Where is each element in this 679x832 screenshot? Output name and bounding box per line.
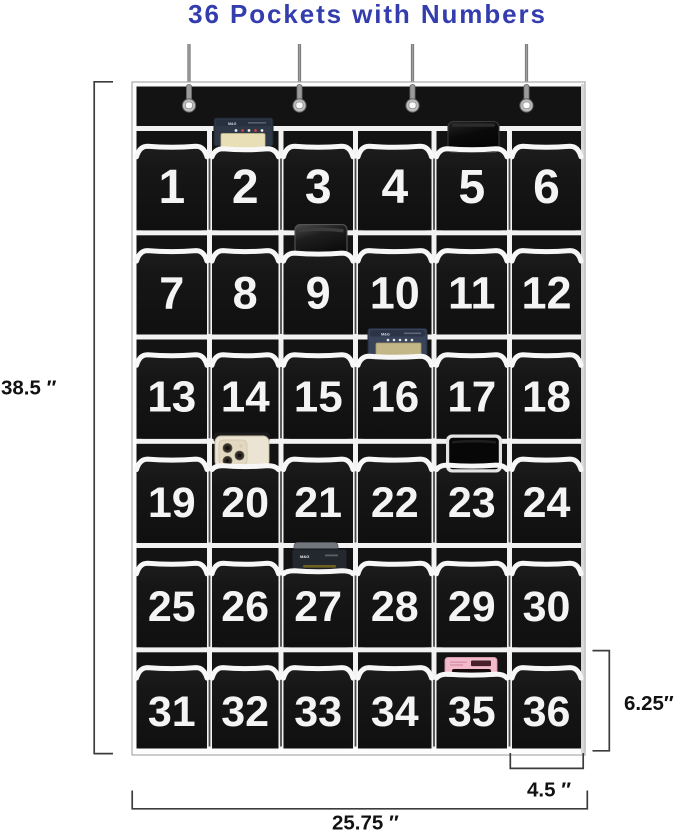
svg-text:1: 1 [158, 161, 185, 214]
svg-text:24: 24 [523, 479, 571, 527]
svg-text:31: 31 [148, 688, 196, 736]
svg-text:12: 12 [521, 267, 571, 318]
svg-text:36: 36 [523, 688, 571, 736]
svg-text:M&G: M&G [228, 122, 237, 126]
svg-text:16: 16 [370, 373, 419, 422]
svg-text:35: 35 [448, 688, 496, 736]
svg-text:34: 34 [371, 688, 419, 736]
svg-text:18: 18 [522, 373, 571, 422]
svg-text:4.5 ″: 4.5 ″ [527, 779, 571, 802]
svg-text:4: 4 [381, 161, 408, 214]
svg-text:27: 27 [294, 583, 342, 631]
svg-text:28: 28 [371, 583, 419, 631]
svg-text:5: 5 [458, 161, 485, 214]
svg-text:21: 21 [294, 479, 342, 527]
svg-text:M&G: M&G [381, 333, 390, 337]
svg-text:10: 10 [370, 267, 420, 318]
svg-text:6: 6 [533, 161, 560, 214]
svg-text:20: 20 [221, 479, 269, 527]
svg-text:M&G: M&G [300, 554, 309, 559]
svg-text:17: 17 [447, 373, 496, 422]
svg-text:13: 13 [147, 373, 196, 422]
svg-text:6.25″: 6.25″ [624, 692, 674, 715]
svg-text:29: 29 [448, 583, 496, 631]
svg-text:9: 9 [306, 267, 331, 318]
svg-text:32: 32 [221, 688, 269, 736]
svg-text:33: 33 [294, 688, 342, 736]
svg-text:25: 25 [148, 583, 196, 631]
svg-text:3: 3 [305, 161, 332, 214]
svg-text:11: 11 [448, 267, 496, 318]
svg-text:26: 26 [221, 583, 269, 631]
svg-text:2: 2 [232, 161, 259, 214]
svg-text:25.75 ″: 25.75 ″ [332, 812, 399, 832]
svg-text:19: 19 [148, 479, 196, 527]
svg-text:23: 23 [448, 479, 496, 527]
svg-text:15: 15 [294, 373, 343, 422]
svg-text:7: 7 [159, 267, 184, 318]
svg-text:8: 8 [233, 267, 258, 318]
svg-text:22: 22 [371, 479, 419, 527]
svg-text:30: 30 [523, 583, 571, 631]
svg-text:14: 14 [221, 373, 270, 422]
svg-text:38.5 ″: 38.5 ″ [1, 377, 57, 400]
